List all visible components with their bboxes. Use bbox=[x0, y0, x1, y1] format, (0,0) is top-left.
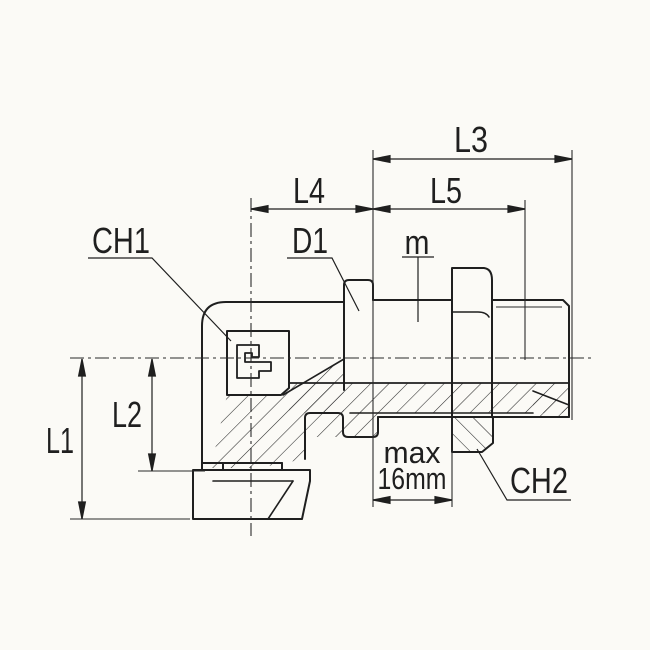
label-l3: L3 bbox=[454, 119, 488, 160]
label-16mm: 16mm bbox=[378, 461, 447, 496]
label-l2: L2 bbox=[112, 394, 142, 435]
technical-drawing: L3 L4 L5 CH1 D1 m L2 L1 max 16mm CH2 bbox=[0, 0, 650, 650]
label-ch2: CH2 bbox=[510, 460, 568, 501]
label-l4: L4 bbox=[293, 170, 325, 211]
drawing-canvas: L3 L4 L5 CH1 D1 m L2 L1 max 16mm CH2 bbox=[0, 0, 650, 650]
drawing-background bbox=[0, 0, 650, 650]
label-l1: L1 bbox=[46, 420, 74, 461]
label-ch1: CH1 bbox=[92, 220, 150, 261]
label-d1: D1 bbox=[292, 220, 328, 261]
label-m: m bbox=[405, 224, 430, 262]
label-l5: L5 bbox=[430, 170, 462, 211]
